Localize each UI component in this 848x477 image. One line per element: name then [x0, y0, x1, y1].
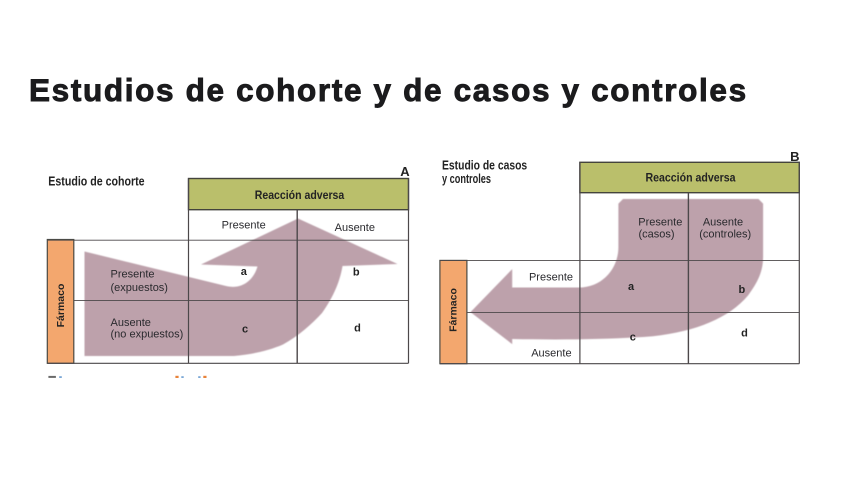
- svg-text:Fármaco: Fármaco: [447, 288, 459, 332]
- svg-text:Reacción adversa: Reacción adversa: [646, 173, 737, 185]
- svg-text:Ausente: Ausente: [531, 347, 571, 359]
- svg-text:c: c: [242, 323, 248, 335]
- svg-text:Ausente: Ausente: [703, 216, 743, 228]
- svg-text:a: a: [628, 281, 635, 293]
- svg-text:Estudio de cohorte: Estudio de cohorte: [48, 173, 144, 188]
- svg-text:a: a: [241, 266, 248, 278]
- svg-text:b: b: [353, 267, 360, 279]
- svg-text:d: d: [354, 323, 361, 335]
- svg-text:(controles): (controles): [699, 228, 751, 240]
- svg-text:B: B: [790, 149, 799, 164]
- svg-text:Ausente: Ausente: [335, 222, 375, 234]
- svg-text:Fármaco: Fármaco: [55, 284, 67, 328]
- svg-text:(expuestos): (expuestos): [111, 282, 168, 294]
- svg-text:Ausente: Ausente: [111, 317, 151, 329]
- svg-text:Presente: Presente: [529, 272, 573, 284]
- svg-text:Presente: Presente: [638, 216, 682, 228]
- svg-text:Presente: Presente: [111, 268, 155, 280]
- svg-text:d: d: [741, 328, 748, 340]
- svg-text:(no expuestos): (no expuestos): [111, 329, 184, 341]
- svg-text:y controles: y controles: [442, 171, 491, 186]
- svg-text:Reacción adversa: Reacción adversa: [255, 190, 345, 202]
- svg-text:b: b: [739, 284, 746, 296]
- svg-text:c: c: [630, 332, 636, 344]
- svg-text:A: A: [400, 164, 410, 179]
- svg-text:Estudios de cohorte y de casos: Estudios de cohorte y de casos y control…: [29, 72, 748, 108]
- svg-text:(casos): (casos): [638, 228, 674, 240]
- svg-text:Presente: Presente: [222, 220, 266, 232]
